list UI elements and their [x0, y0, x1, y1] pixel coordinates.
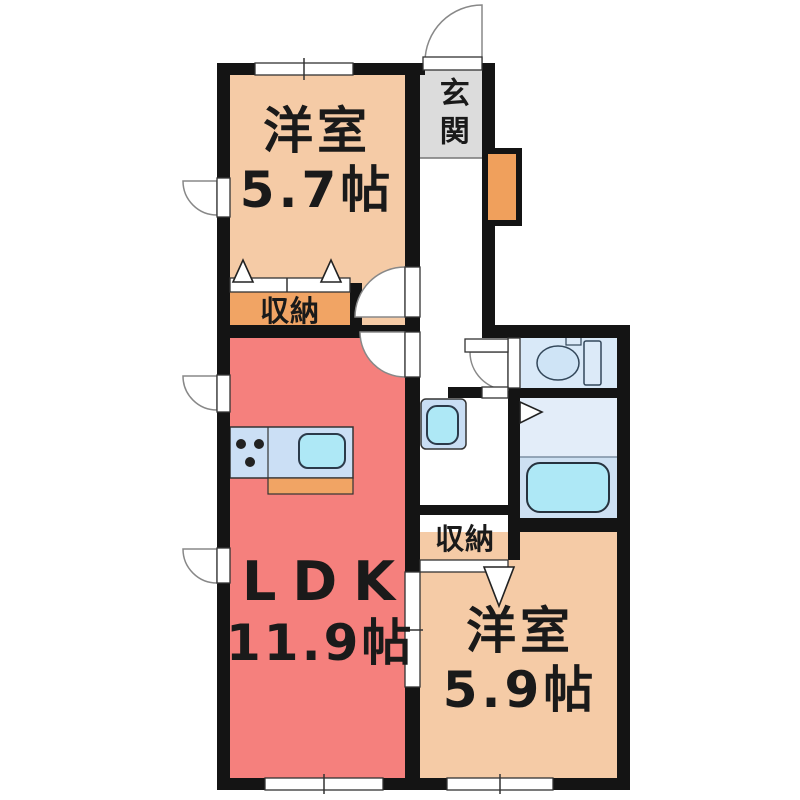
- wall-closet-bottom-top: [415, 505, 520, 515]
- closet-top-text: 収納: [230, 294, 350, 328]
- ldk-name: LDK: [226, 550, 408, 614]
- floor-plan: 玄関 洋室 5.7帖 収納 LDK 11.9帖 収納 洋室 5.9帖: [0, 0, 800, 800]
- toilet-icon: [537, 346, 579, 380]
- bedroom-bottom-name: 洋室: [425, 602, 615, 661]
- bedroom-bottom-size: 5.9帖: [425, 661, 615, 720]
- ldk-door-leaf: [405, 332, 420, 377]
- ldk-label: LDK 11.9帖: [226, 550, 408, 673]
- window-swing-arc: [183, 376, 217, 410]
- entrance-label-text: 玄関: [433, 77, 468, 153]
- washroom-door: [482, 387, 508, 398]
- toilet-tank: [584, 341, 601, 385]
- bathtub-icon: [527, 463, 609, 512]
- closet-bottom-text: 収納: [420, 522, 510, 556]
- wall-bath-bottom: [508, 518, 630, 532]
- bedroom-top-name: 洋室: [228, 102, 406, 161]
- wall-toilet-top: [482, 325, 630, 338]
- window: [217, 375, 230, 412]
- window-swing-arc: [183, 549, 217, 583]
- closet-bottom-label: 収納: [420, 522, 510, 556]
- bedroom-top-door-leaf: [405, 267, 420, 317]
- stove-burner-icon: [245, 457, 255, 467]
- bedroom-top-label: 洋室 5.7帖: [228, 102, 406, 220]
- wall-washroom-stub: [448, 387, 482, 398]
- wall-toilet-bottom: [508, 388, 630, 398]
- bath-room-upper-floor: [520, 398, 617, 457]
- toilet-doorway: [508, 338, 520, 388]
- entrance-label: 玄関: [420, 74, 482, 156]
- stove-burner-icon: [236, 439, 246, 449]
- shoe-cabinet: [488, 154, 516, 220]
- toilet-door-leaf: [465, 339, 508, 352]
- toilet-door-swing-arc: [470, 352, 508, 390]
- closet-top-label: 収納: [230, 294, 350, 328]
- kitchen-counter-edge: [268, 478, 353, 494]
- bedroom-bottom-label: 洋室 5.9帖: [425, 602, 615, 720]
- washbasin-icon: [427, 406, 458, 444]
- front-door-swing-arc: [425, 5, 482, 62]
- bedroom-top-size: 5.7帖: [228, 161, 406, 220]
- ldk-size: 11.9帖: [226, 614, 408, 673]
- kitchen-sink-icon: [299, 434, 345, 468]
- front-door-leaf: [423, 57, 482, 70]
- stove-burner-icon: [254, 439, 264, 449]
- window-swing-arc: [183, 181, 217, 215]
